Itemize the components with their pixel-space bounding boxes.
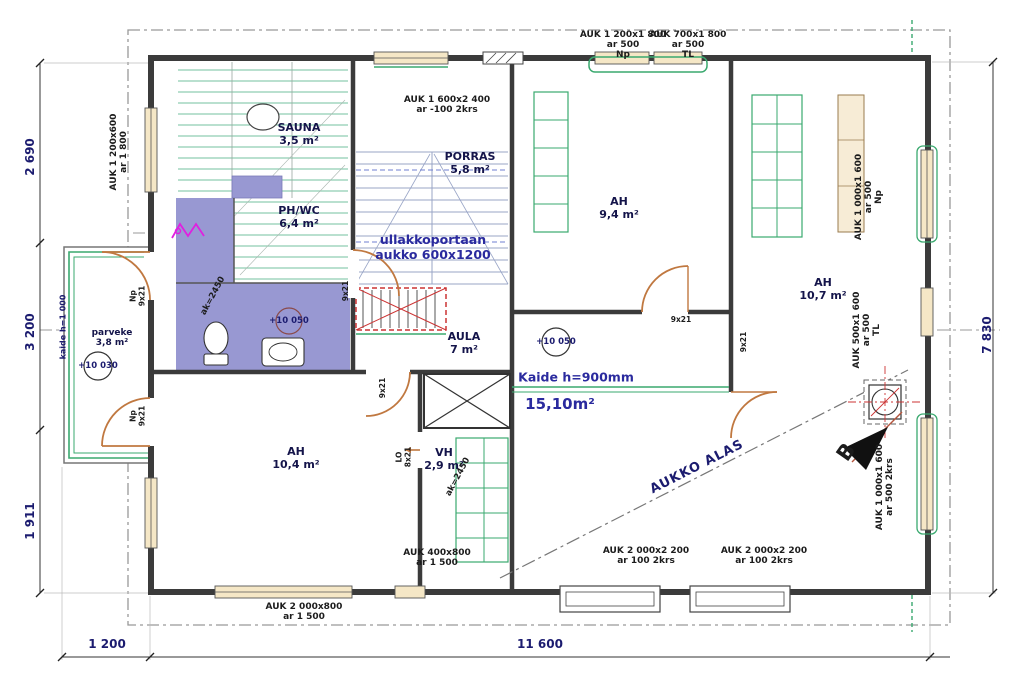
dimension-left-top: 2 690 (23, 138, 37, 176)
opening-size: AUK 1 000x1 600 (854, 154, 864, 240)
opening-label-bottom-2krs-a: AUK 2 000x2 200 ar 100 2krs (603, 546, 689, 566)
opening-sill: ar 1 800 (119, 114, 129, 191)
room-label-ah-right: AH 10,7 m² (799, 276, 846, 302)
level-marker-phwc: +10 050 (269, 316, 309, 326)
dimension-left-mid: 3 200 (23, 313, 37, 351)
door-size: 9x21 (138, 406, 147, 427)
railing-note: Kaide h=900mm (518, 370, 634, 385)
landing-area-note: 15,10m² (525, 395, 595, 413)
attic-note-line2: aukko 600x1200 (375, 247, 491, 262)
opening-type: TL (650, 50, 727, 60)
dimension-bottom-small: 1 200 (88, 637, 126, 651)
opening-size: AUK 2 000x2 200 (721, 546, 807, 556)
room-name: AULA (448, 330, 481, 343)
attic-ladder-opening (356, 288, 446, 334)
room-name: AH (799, 276, 846, 289)
door-tag-phwc: 9x21 (342, 281, 351, 302)
opening-size: AUK 400x800 (403, 548, 470, 558)
room-label-ah-left: AH 10,4 m² (272, 445, 319, 471)
opening-sill: ar -100 2krs (404, 105, 490, 115)
room-area: 10,7 m² (799, 289, 846, 302)
opening-label-bottom-left: AUK 2 000x800 ar 1 500 (266, 602, 343, 622)
room-label-ah-top: AH 9,4 m² (599, 195, 639, 221)
opening-size: AUK 1 000x1 600 (875, 444, 885, 530)
opening-size: AUK 500x1 600 (852, 292, 862, 369)
level-marker-balcony: +10 030 (78, 361, 118, 371)
dimension-right: 7 830 (980, 316, 994, 354)
door-size: 8x21 (404, 447, 413, 468)
attic-note-line1: ullakkoportaan (375, 232, 491, 247)
level-marker-aula: +10 050 (536, 337, 576, 347)
opening-size: AUK 2 000x800 (266, 602, 343, 612)
room-name: SAUNA (278, 121, 321, 134)
room-area: 7 m² (448, 343, 481, 356)
opening-sill: ar 500 (650, 40, 727, 50)
opening-label-porras: AUK 1 600x2 400 ar -100 2krs (404, 95, 490, 115)
room-area: 5,8 m² (445, 163, 496, 176)
room-name: AH (272, 445, 319, 458)
room-name: PH/WC (278, 204, 320, 217)
room-name: AH (599, 195, 639, 208)
opening-sill: ar 100 2krs (721, 556, 807, 566)
dimension-left-bottom: 1 911 (23, 502, 37, 540)
room-name: VH (424, 446, 464, 459)
toilet (204, 322, 228, 365)
opening-size: AUK 700x1 800 (650, 30, 727, 40)
room-name: PORRAS (445, 150, 496, 163)
room-label-phwc: PH/WC 6,4 m² (278, 204, 320, 230)
room-name: parveke (92, 328, 133, 338)
door-tag-aula: 9x21 (379, 378, 388, 399)
door-size: 9x21 (138, 286, 147, 307)
opening-label-bottom-2krs-b: AUK 2 000x2 200 ar 100 2krs (721, 546, 807, 566)
opening-sill: ar 1 500 (266, 612, 343, 622)
opening-sill: ar 1 500 (403, 558, 470, 568)
opening-cross-box (424, 374, 510, 428)
room-area: 10,4 m² (272, 458, 319, 471)
opening-sill: ar 500 2krs (885, 444, 895, 530)
door-tag-ah-top: 9x21 (671, 316, 692, 325)
balcony-railing-note: kaide h=1 000 (59, 295, 68, 360)
door-tag-ah-right: 9x21 (740, 332, 749, 353)
door-tag-np-top: Np 9x21 (130, 286, 147, 307)
opening-size: AUK 2 000x2 200 (603, 546, 689, 556)
opening-sill: ar 500 (862, 292, 872, 369)
door-tag-np-bottom: Np 9x21 (130, 406, 147, 427)
opening-sill: ar 100 2krs (603, 556, 689, 566)
room-label-sauna: SAUNA 3,5 m² (278, 121, 321, 147)
opening-label-right-tl: AUK 500x1 600 ar 500 TL (852, 292, 882, 369)
opening-label-top-tl: AUK 700x1 800 ar 500 TL (650, 30, 727, 60)
sink (262, 338, 304, 366)
opening-type: TL (872, 292, 882, 369)
opening-size: AUK 1 200x600 (109, 114, 119, 191)
opening-label-right-np: AUK 1 000x1 600 ar 500 Np (854, 154, 884, 240)
floor-plan-page: 2 690 3 200 1 911 7 830 1 200 11 600 AUK… (0, 0, 1024, 679)
opening-label-right-2krs: AUK 1 000x1 600 ar 500 2krs (875, 444, 895, 530)
opening-sill: ar 500 (864, 154, 874, 240)
room-area: 3,8 m² (92, 338, 133, 348)
attic-opening-note: ullakkoportaan aukko 600x1200 (375, 232, 491, 262)
room-label-parveke: parveke 3,8 m² (92, 328, 133, 348)
sauna-stove (247, 104, 279, 130)
room-area: 6,4 m² (278, 217, 320, 230)
dimension-bottom-main: 11 600 (517, 637, 563, 651)
opening-label-left: AUK 1 200x600 ar 1 800 (109, 114, 129, 191)
room-label-porras: PORRAS 5,8 m² (445, 150, 496, 176)
room-area: 3,5 m² (278, 134, 321, 147)
opening-type: Np (874, 154, 884, 240)
door-tag-vh: LO 8x21 (396, 447, 413, 468)
opening-size: AUK 1 600x2 400 (404, 95, 490, 105)
room-area: 9,4 m² (599, 208, 639, 221)
room-label-aula: AULA 7 m² (448, 330, 481, 356)
opening-label-bottom-small: AUK 400x800 ar 1 500 (403, 548, 470, 568)
